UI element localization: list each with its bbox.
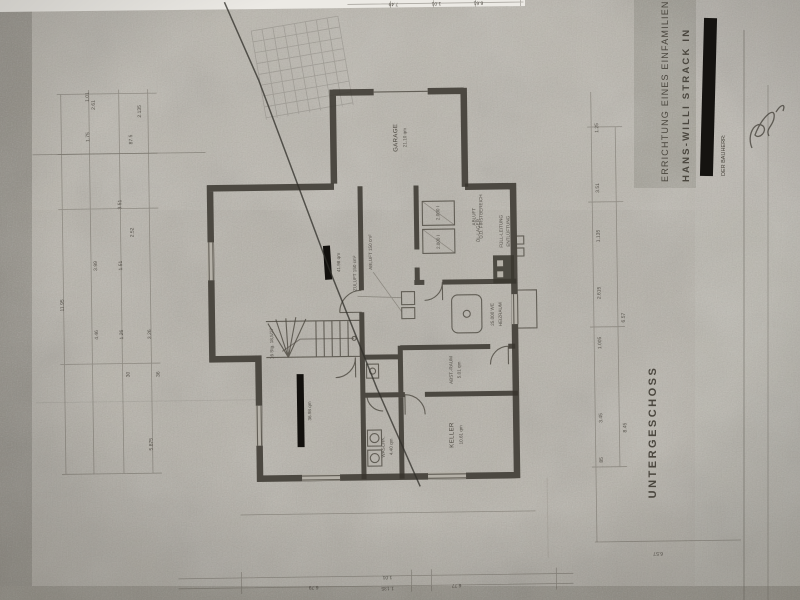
floorplan-drawing: GARAGE 21.10 qm ÖL-LAGER 25.000 WE HEIZR…: [0, 0, 800, 600]
floorplan-photo: GARAGE 21.10 qm ÖL-LAGER 25.000 WE HEIZR…: [0, 0, 800, 600]
vignette: [0, 0, 800, 600]
